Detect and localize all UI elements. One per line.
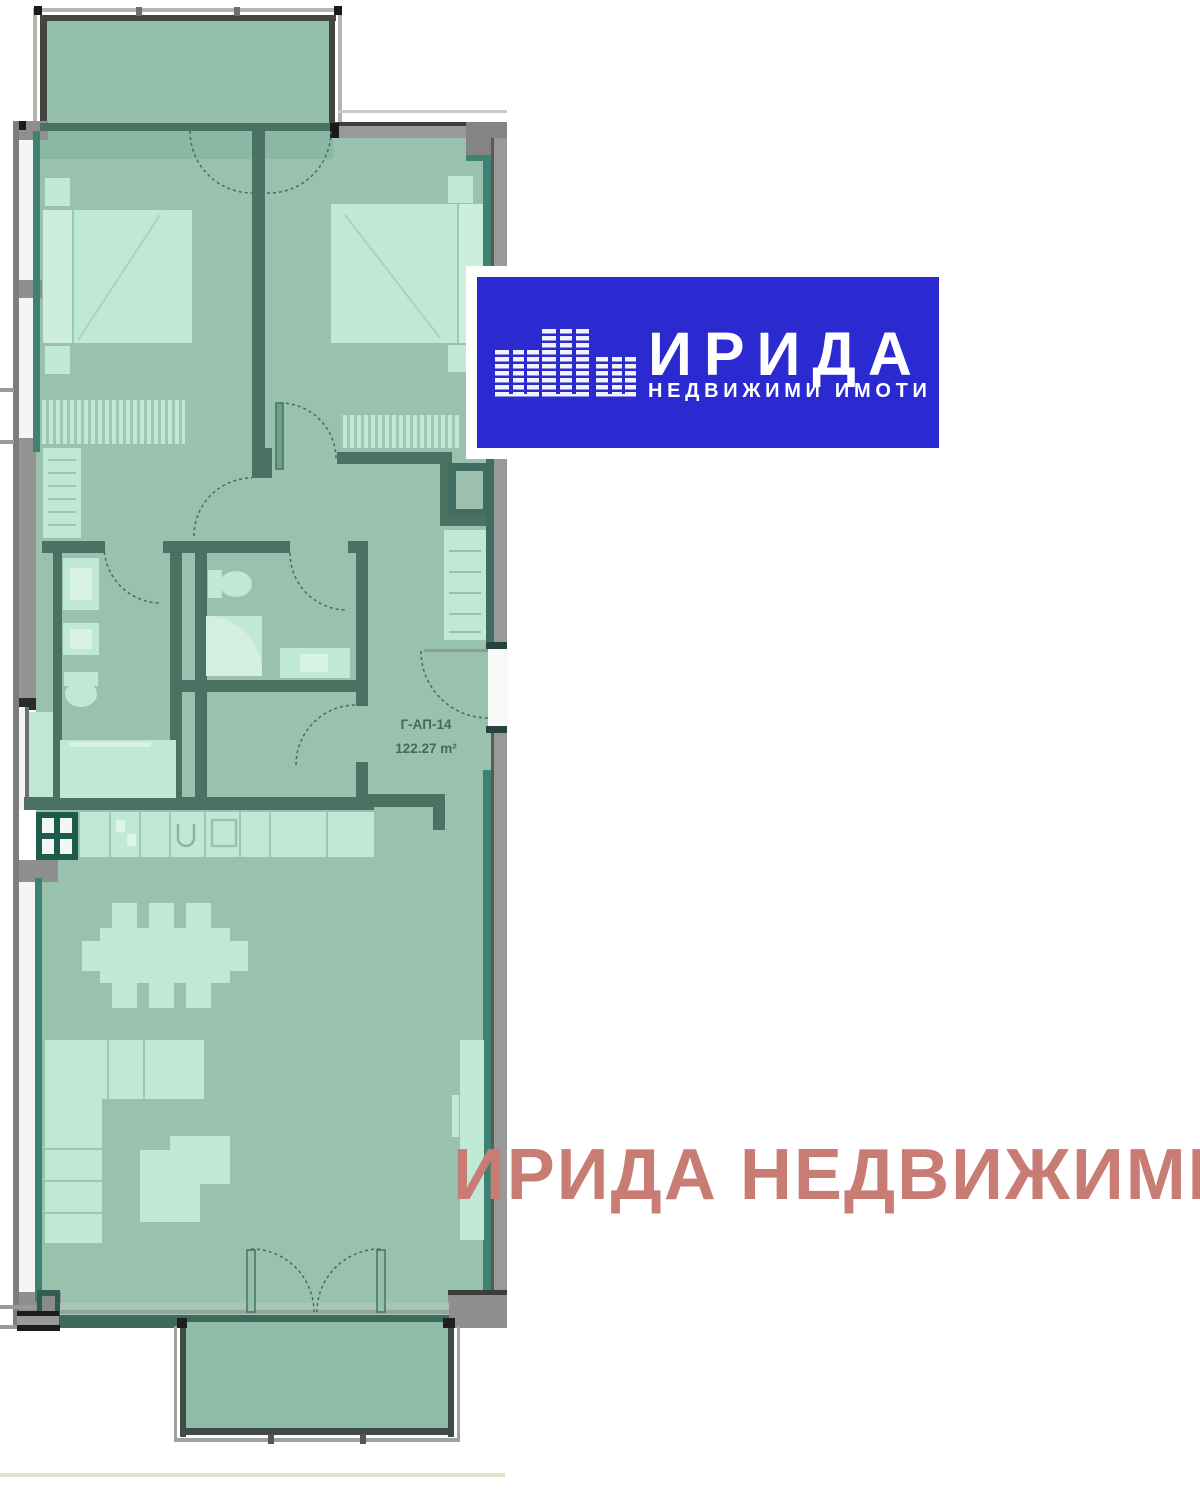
svg-text:Г-АП-14: Г-АП-14: [401, 717, 452, 732]
svg-text:НЕДВИЖИМИ ИМОТИ: НЕДВИЖИМИ ИМОТИ: [648, 380, 932, 402]
svg-text:ИРИДА НЕДВИЖИМИ: ИРИДА НЕДВИЖИМИ: [453, 1135, 1200, 1215]
svg-text:122.27 m²: 122.27 m²: [395, 741, 457, 756]
svg-text:ИРИДА: ИРИДА: [648, 320, 924, 388]
